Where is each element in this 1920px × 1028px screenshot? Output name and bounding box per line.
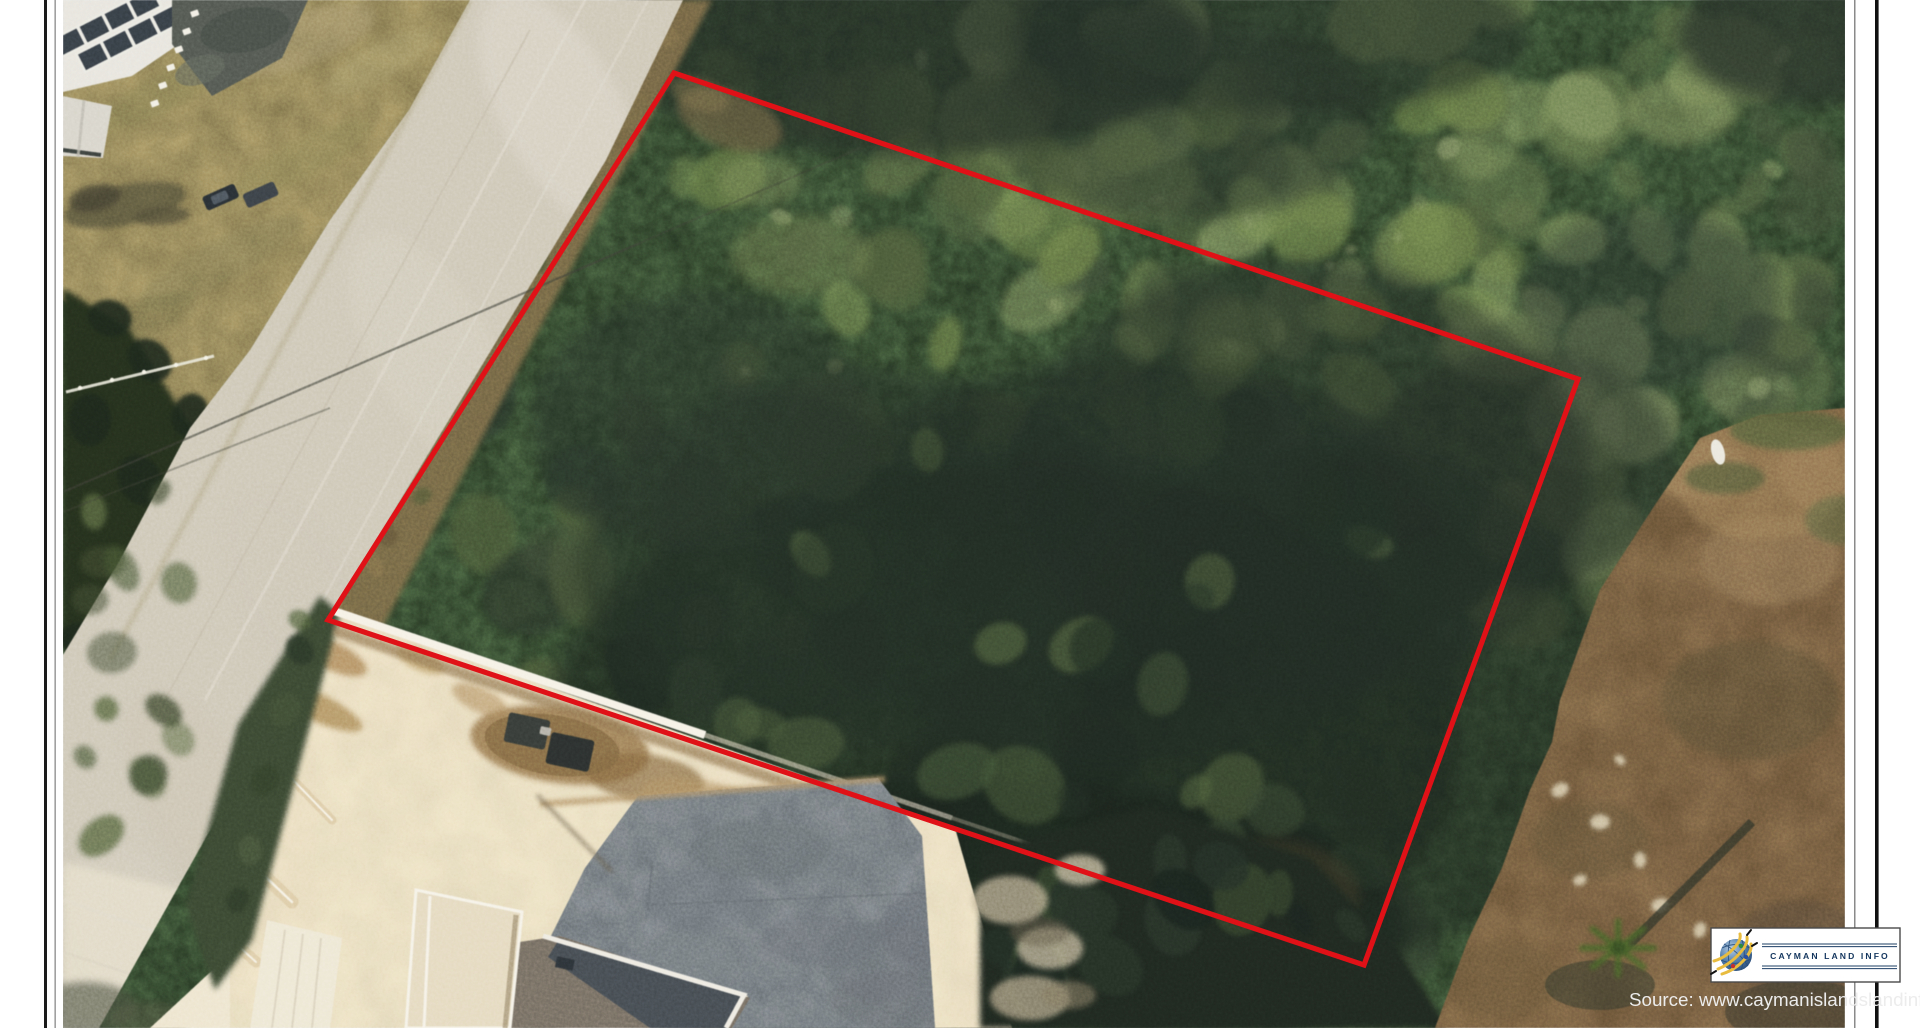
svg-text:CAYMAN LAND INFO: CAYMAN LAND INFO xyxy=(1770,951,1890,961)
svg-text:Source: www.caymanislandslandi: Source: www.caymanislandslandinfo.com xyxy=(1629,989,1920,1010)
